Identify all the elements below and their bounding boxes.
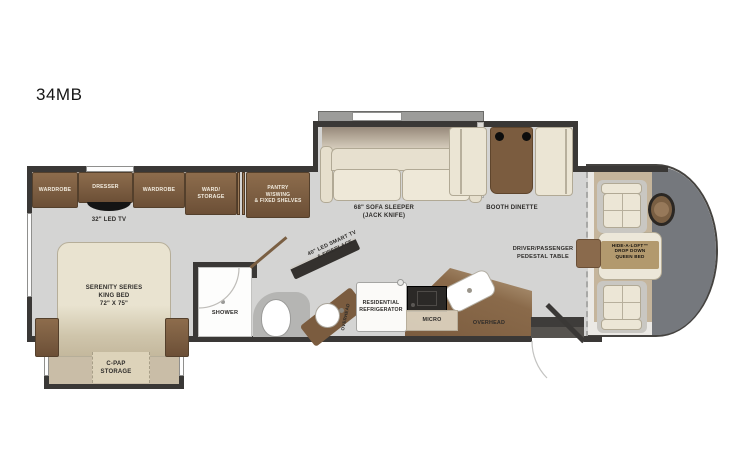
kitchen-sink-drain	[467, 288, 472, 293]
dinette-bench-right-seam	[565, 129, 567, 194]
wardrobe-left-cabinet: WARDROBE	[32, 172, 78, 208]
floorplan-title: 34MB	[36, 84, 126, 107]
wall-top-right	[573, 166, 668, 172]
shower	[198, 267, 252, 337]
dinette-bench-right	[535, 127, 573, 196]
wardrobe-right-cabinet: WARDROBE	[133, 172, 185, 208]
wall-slide-left	[313, 121, 318, 172]
wall-bottom-3	[584, 336, 602, 342]
wall-slide-right	[573, 121, 578, 172]
pantry-door	[242, 172, 245, 215]
pantry-door	[237, 172, 240, 215]
rv-floorplan: 34MB WARDROBE DRESSER 32" LED TV WARDROB…	[0, 0, 731, 469]
ward-storage-cabinet: WARD/ STORAGE	[185, 172, 237, 215]
cooktop-burner	[417, 291, 437, 306]
entry-door-arc	[532, 341, 547, 378]
shower-drain	[221, 300, 225, 304]
driver-seat-back	[601, 319, 642, 330]
nightstand-left	[35, 318, 59, 357]
microwave-label: MICRO	[406, 317, 458, 324]
sofa-label: 68" SOFA SLEEPER (JACK KNIFE)	[334, 204, 434, 220]
dinette-cupholder	[522, 132, 531, 141]
dinette-cupholder	[495, 132, 504, 141]
pantry-label: PANTRY W/SWING & FIXED SHELVES	[254, 185, 301, 205]
dresser-cabinet: DRESSER	[78, 172, 133, 203]
kitchen-overhead-label: OVERHEAD	[459, 320, 519, 327]
pedestal-table-label: DRIVER/PASSENGER PEDESTAL TABLE	[503, 246, 583, 261]
refrigerator-label: RESIDENTIAL REFRIGERATOR	[351, 300, 411, 314]
sofa-slideout-window	[352, 112, 402, 121]
shower-label: SHOWER	[198, 310, 252, 318]
passenger-seat-seam-h	[604, 210, 640, 211]
window-left	[27, 213, 32, 297]
king-bed-label: SERENITY SERIES KING BED 72" X 75"	[64, 284, 164, 308]
wardrobe-right-label: WARDROBE	[143, 187, 175, 194]
driver-seat-seam-h	[604, 302, 640, 303]
vanity-sink	[315, 303, 340, 328]
refrigerator-knob	[397, 279, 404, 286]
ward-storage-label: WARD/ STORAGE	[198, 187, 225, 201]
hide-a-loft-label: HIDE-A-LOFT™ DROP DOWN QUEEN BED	[601, 243, 659, 259]
toilet	[261, 299, 291, 337]
nightstand-right	[165, 318, 189, 357]
dinette-label: BOOTH DINETTE	[470, 204, 554, 212]
dresser-label: DRESSER	[92, 184, 118, 191]
dinette-bench-left	[449, 127, 487, 196]
tv-32-label: 32" LED TV	[84, 216, 134, 224]
sofa-cushion	[333, 169, 401, 201]
cpap-storage-label: C-PAP STORAGE	[86, 360, 146, 376]
wardrobe-left-label: WARDROBE	[39, 187, 71, 194]
pantry-cabinet: PANTRY W/SWING & FIXED SHELVES	[246, 172, 310, 218]
cooktop-knob	[411, 303, 415, 307]
dinette-bench-left-seam	[460, 129, 462, 194]
steering-wheel-hub	[654, 202, 669, 217]
